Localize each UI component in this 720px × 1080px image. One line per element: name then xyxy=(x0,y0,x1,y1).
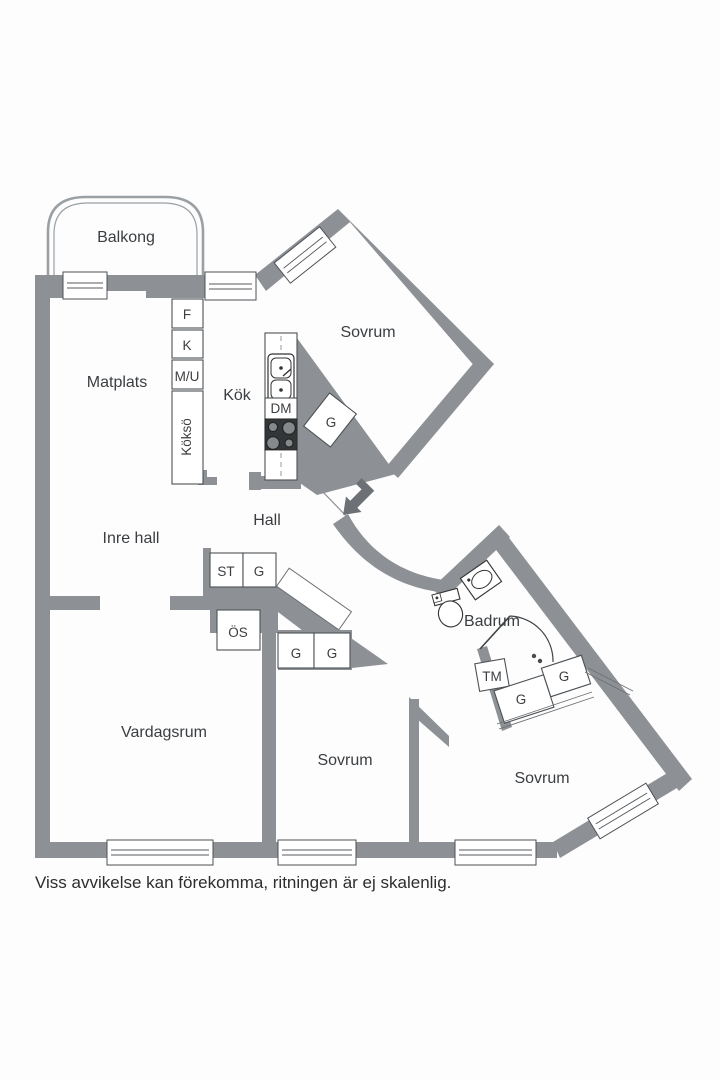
bedroom-top-label: Sovrum xyxy=(340,324,395,341)
wall-segment xyxy=(249,472,261,490)
wall-segment xyxy=(386,353,494,478)
closet-os-label: ÖS xyxy=(228,625,248,640)
window xyxy=(455,840,536,865)
closet-st-label: ST xyxy=(217,564,234,579)
door-hinge-dot xyxy=(538,659,542,663)
window xyxy=(205,272,256,300)
wardrobe-right-1-label: G xyxy=(516,692,527,707)
wall-segment xyxy=(48,596,100,610)
fridge-label: F xyxy=(183,307,191,322)
wardrobe-right-2-label: G xyxy=(559,669,570,684)
floor-plan-page: Balkong Matplats F K M/U Köksö Kök Sovru… xyxy=(0,0,720,1080)
wall-segment xyxy=(105,275,148,291)
inner-hall-label: Inre hall xyxy=(103,530,160,547)
wall-segment xyxy=(487,526,692,791)
washing-machine-label: TM xyxy=(482,669,502,684)
door-hinge-dot xyxy=(532,654,536,658)
wall-segment xyxy=(146,275,205,298)
micro-oven-label: M/U xyxy=(175,369,200,384)
wall-segment xyxy=(170,596,210,610)
wardrobe-mid-1-label: G xyxy=(291,646,302,661)
wardrobe-bedroom-top-label: G xyxy=(326,415,337,430)
dishwasher-label: DM xyxy=(271,401,292,416)
kitchen-label: Kök xyxy=(223,387,252,404)
closet-g-label: G xyxy=(254,564,265,579)
dining-label: Matplats xyxy=(87,374,147,391)
hall-label: Hall xyxy=(253,512,281,529)
window xyxy=(63,272,107,299)
kitchen-sink-icon xyxy=(268,354,294,402)
window xyxy=(278,840,356,865)
wall-segment xyxy=(262,610,276,844)
freezer-label: K xyxy=(182,338,191,353)
wardrobe-mid-2-label: G xyxy=(327,646,338,661)
window xyxy=(107,840,213,865)
wall-segment xyxy=(207,477,217,485)
toilet-icon xyxy=(432,588,466,630)
living-room-label: Vardagsrum xyxy=(121,724,207,741)
floor-plan-drawing: Balkong Matplats F K M/U Köksö Kök Sovru… xyxy=(0,0,720,1080)
wall-segment xyxy=(409,699,419,844)
window xyxy=(588,783,659,839)
disclaimer-caption: Viss avvikelse kan förekomma, ritningen … xyxy=(35,873,451,892)
wall-segment xyxy=(35,275,63,298)
wall-segment xyxy=(35,275,50,856)
wall-segment xyxy=(338,209,494,376)
bathroom-label: Badrum xyxy=(464,613,520,630)
stove-icon xyxy=(265,419,297,450)
wall-curved-segment xyxy=(333,514,453,593)
balcony-label: Balkong xyxy=(97,229,155,246)
bedroom-right-label: Sovrum xyxy=(514,770,569,787)
bedroom-mid-label: Sovrum xyxy=(317,752,372,769)
island-label: Köksö xyxy=(179,418,194,456)
